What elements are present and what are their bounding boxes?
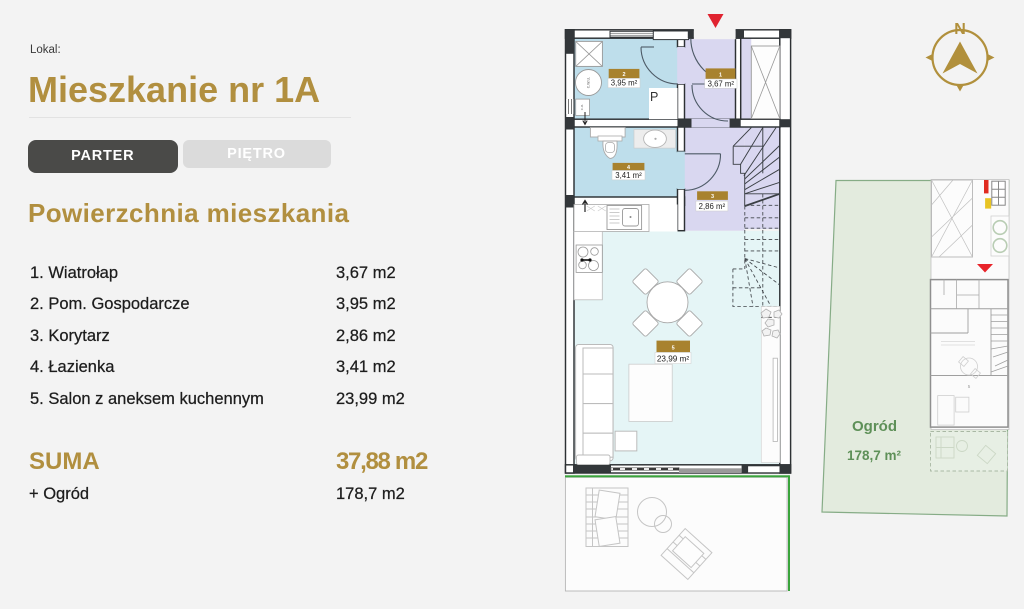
svg-text:2,86 m²: 2,86 m² (699, 202, 726, 211)
svg-text:3,67 m²: 3,67 m² (708, 79, 735, 88)
svg-text:3: 3 (711, 194, 714, 200)
svg-text:5: 5 (672, 345, 675, 351)
svg-text:P: P (650, 90, 658, 104)
svg-text:N: N (954, 21, 966, 38)
svg-text:1: 1 (719, 72, 722, 78)
svg-text:3,41 m²: 3,41 m² (615, 171, 642, 180)
svg-text:2: 2 (622, 72, 625, 78)
svg-text:c.w.u.: c.w.u. (586, 77, 591, 89)
svg-text:c.o.: c.o. (579, 104, 584, 110)
svg-text:23,99 m²: 23,99 m² (657, 355, 690, 364)
svg-text:3,95 m²: 3,95 m² (611, 79, 638, 88)
